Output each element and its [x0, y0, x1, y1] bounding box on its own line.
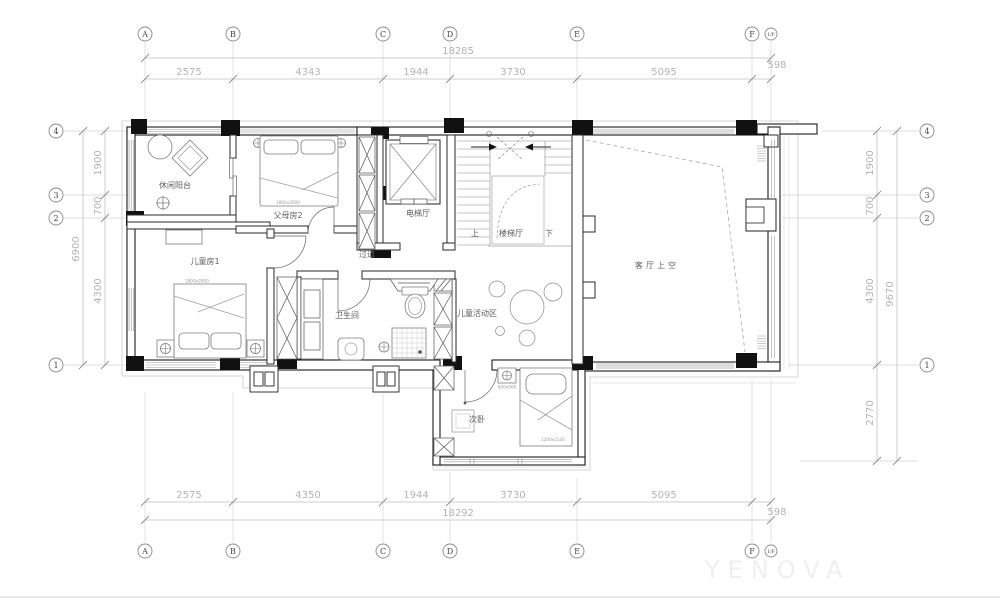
dim-bot-6: 598 [767, 507, 786, 518]
dim-top-5: 5095 [651, 67, 676, 78]
grid-label-e-top: E [574, 30, 580, 39]
second-bedroom-furniture [452, 368, 572, 446]
label-nightstand-size: 600x600 [498, 385, 517, 390]
grid-label-b-bottom: B [230, 547, 236, 556]
grid-label-3-left: 3 [53, 191, 58, 200]
grid-label-e-bottom: E [574, 547, 580, 556]
dim-left-overall: 6900 [71, 236, 82, 261]
grid-label-a-bottom: A [141, 547, 148, 556]
kids-room-furniture [157, 230, 264, 358]
dim-top-6: 598 [767, 60, 786, 71]
dim-right-3: 4300 [865, 278, 876, 303]
label-bed-parents-size: 1800x2000 [276, 200, 300, 205]
dim-bot-2: 4350 [295, 490, 320, 501]
grid-label-c-bottom: C [380, 547, 386, 556]
label-balcony: 休闲阳台 [159, 180, 191, 190]
dim-left-1: 1900 [93, 150, 104, 175]
label-bed-kids-size: 1800x2000 [185, 279, 209, 284]
dim-top-2: 4343 [295, 67, 320, 78]
grid-label-b-top: B [230, 30, 236, 39]
blind-hatch-strips [757, 146, 766, 349]
stair-arrow-left [525, 144, 533, 151]
dim-bot-1: 2575 [176, 490, 201, 501]
cad-sheet: 18285 2575 4343 1944 3730 5095 598 2575 … [0, 0, 1000, 605]
label-living: 客厅上空 [635, 260, 679, 270]
grid-label-a-top: A [141, 30, 148, 39]
label-bed-second-size: 1200x2130 [541, 437, 565, 442]
dim-left-3: 4300 [93, 278, 104, 303]
floor-plan-drawing: 18285 2575 4343 1944 3730 5095 598 2575 … [0, 0, 1000, 605]
window-band-bottom [596, 363, 734, 369]
door-parents [308, 207, 334, 233]
grid-label-4-left: 4 [53, 127, 58, 136]
dim-bot-overall: 18292 [442, 508, 474, 519]
grid-label-3-right: 3 [924, 191, 929, 200]
door-kids [274, 236, 306, 268]
grid-label-1f-top: 1/F [767, 32, 775, 38]
door-bath [338, 279, 370, 311]
door-second [465, 370, 497, 402]
dim-right-4: 2770 [865, 400, 876, 425]
grid-label-2-right: 2 [924, 214, 929, 223]
dim-right-overall: 9670 [885, 281, 896, 306]
dim-top-3: 1944 [403, 67, 428, 78]
label-play: 儿童活动区 [457, 308, 497, 318]
label-parents: 父母房2 [273, 210, 302, 220]
round-table [148, 135, 172, 159]
window-band-top [590, 129, 734, 135]
label-corridor: 过道 [359, 249, 375, 259]
grid-label-2-left: 2 [53, 214, 58, 223]
ceiling-fan-icon [156, 196, 170, 210]
dim-bot-5: 5095 [651, 490, 676, 501]
parents-room-furniture [253, 136, 346, 206]
label-stair: 楼梯厅 [499, 228, 523, 238]
label-stair-down: 下 [545, 229, 553, 238]
grid-label-f-top: F [749, 30, 755, 39]
grid-label-d-top: D [447, 30, 453, 39]
dresser [166, 230, 202, 244]
dim-right-1: 1900 [865, 150, 876, 175]
balcony-furniture [148, 135, 208, 210]
grid-label-f-bottom: F [749, 547, 755, 556]
label-bath: 卫生间 [335, 310, 359, 320]
play-area-rug [489, 281, 562, 346]
stair-arrow-right [489, 144, 497, 151]
dim-left-2: 700 [93, 196, 104, 215]
window-band-parents [240, 129, 355, 134]
dim-bot-3: 1944 [403, 490, 428, 501]
dim-right-2: 700 [865, 196, 876, 215]
dim-bot-4: 3730 [500, 490, 525, 501]
dim-top-overall: 18285 [442, 46, 474, 57]
label-second: 次卧 [469, 414, 485, 424]
floor-drain [418, 350, 422, 354]
grid-label-4-right: 4 [924, 127, 929, 136]
label-elevator: 电梯厅 [406, 208, 430, 218]
dim-top-4: 3730 [500, 67, 525, 78]
label-stair-up: 上 [471, 229, 479, 238]
elevator-shaft [386, 137, 440, 205]
living-void-details [586, 140, 776, 352]
grid-label-c-top: C [380, 30, 386, 39]
grid-label-1f-bottom: 1/F [767, 549, 775, 555]
bathroom-fixtures [338, 287, 428, 360]
watermark: YENOVA [704, 556, 851, 584]
grid-label-1-left: 1 [53, 361, 58, 370]
grid-label-1-right: 1 [924, 361, 929, 370]
grid-label-d-bottom: D [447, 547, 453, 556]
label-kids: 儿童房1 [190, 256, 219, 266]
void-dashed-line [586, 140, 745, 352]
dim-top-1: 2575 [176, 67, 201, 78]
